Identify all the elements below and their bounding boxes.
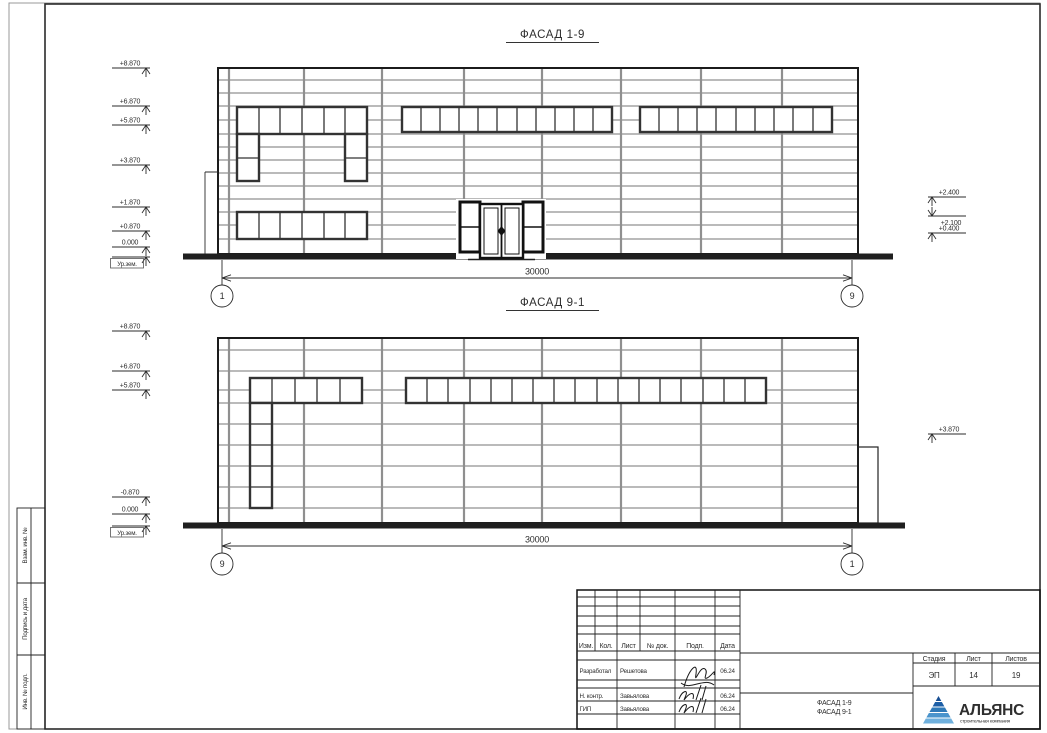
facade2-ground-line [183, 523, 905, 529]
elevation-mark-label: +3.870 [939, 427, 960, 434]
facade1-elevation-marks-right: +2.400 +2.100 +0.400 [928, 190, 966, 243]
tb-role: Разработал [580, 668, 612, 675]
elevation-mark-label: +2.400 [939, 190, 960, 197]
facade1-elevation-marks-left: +8.870 +6.870 +5.870 +3.870 +1.870 +0.87… [111, 61, 151, 269]
elevation-mark-label: +1.870 [120, 200, 141, 207]
tb-date: 06.24 [720, 693, 735, 700]
doc-title-line: ФАСАД 9-1 [817, 709, 852, 716]
tb-name: Завьялова [620, 706, 650, 713]
elevation-mark-label: +8.870 [120, 324, 141, 331]
facade1-window-group-left [237, 107, 367, 181]
facade2-panel-bands [218, 350, 858, 508]
facade1-window-ribbon-center [402, 107, 612, 132]
title-block-staff-rows: Разработал Решетова 06.24 Н. контр. Завь… [580, 667, 736, 713]
tb-col-label: Изм. [579, 643, 593, 650]
title-block: Изм. Кол. Лист № док. Подп. Дата Разрабо… [577, 590, 1040, 729]
company-logo: АЛЬЯНС строительная компания [923, 696, 1024, 725]
tb-date: 06.24 [720, 668, 735, 675]
tb-role: ГИП [580, 706, 592, 713]
facade-1-9-title: ФАСАД 1-9 [520, 29, 585, 41]
facade-9-1-drawing: ФАСАД 9-1 30000 9 1 [111, 297, 967, 575]
elevation-mark-label: +0.400 [939, 226, 960, 233]
grid-axis-bubble: 1 [850, 559, 855, 569]
elevation-mark-label: -0.870 [121, 490, 140, 497]
facade-9-1-title: ФАСАД 9-1 [520, 297, 585, 309]
ground-level-label: Ур.зем. [117, 261, 137, 268]
tb-role: Н. контр. [580, 693, 604, 700]
elevation-mark-label: +8.870 [120, 61, 141, 68]
facade2-window-ribbon-long [406, 378, 766, 403]
facade1-dimension-value: 30000 [525, 267, 549, 277]
stage-label: Стадия [923, 656, 946, 663]
facade1-entrance [456, 199, 546, 260]
logo-company-subtitle: строительная компания [960, 720, 1011, 725]
signature [679, 685, 706, 700]
side-stamp-label: Подпись и дата [22, 597, 29, 639]
title-block-header: Изм. Кол. Лист № док. Подп. Дата [579, 643, 735, 650]
logo-company-name: АЛЬЯНС [959, 702, 1024, 719]
grid-axis-bubble: 9 [220, 559, 225, 569]
grid-axis-bubble: 9 [850, 291, 855, 301]
sheets-label: Листов [1005, 656, 1027, 663]
facade2-grid-axes: 9 1 [211, 553, 863, 575]
sheet-svg: Взам. инв. № Подпись и дата Инв. № подл.… [0, 0, 1047, 733]
title-block-stage: Стадия Лист Листов ЭП 14 19 [923, 656, 1028, 680]
side-stamp-label: Инв. № подл. [22, 673, 29, 710]
tb-name: Завьялова [620, 693, 650, 700]
tb-col-label: Кол. [599, 643, 612, 650]
facade-1-9-drawing: ФАСАД 1-9 [111, 29, 967, 307]
doc-title-line: ФАСАД 1-9 [817, 700, 852, 707]
signature [681, 667, 715, 687]
facade2-elevation-marks-right: +3.870 [928, 427, 966, 444]
facade2-panel-joints [229, 339, 782, 522]
facade1-dimension: 30000 [222, 260, 852, 285]
title-block-doc-title: ФАСАД 1-9 ФАСАД 9-1 [817, 700, 852, 716]
tb-col-label: Подп. [686, 643, 704, 650]
side-stamp-label: Взам. инв. № [22, 527, 29, 563]
sheet-label: Лист [966, 656, 981, 663]
tb-name: Решетова [620, 668, 648, 675]
elevation-mark-label: +5.870 [120, 383, 141, 390]
facade2-dimension-value: 30000 [525, 535, 549, 545]
signature [679, 698, 706, 713]
elevation-mark-label: +6.870 [120, 99, 141, 106]
facade2-elevation-marks-left: +8.870 +6.870 +5.870 -0.870 0.000 Ур.зем… [111, 324, 151, 538]
elevation-mark-label: +3.870 [120, 158, 141, 165]
facade2-outline [218, 338, 858, 523]
elevation-mark-label: 0.000 [122, 240, 139, 247]
facade1-window-ribbon-right [640, 107, 832, 132]
elevation-mark-label: +6.870 [120, 364, 141, 371]
facade2-window-group-left [250, 378, 362, 508]
side-stamp: Взам. инв. № Подпись и дата Инв. № подл. [17, 508, 45, 729]
elevation-mark-label: +5.870 [120, 118, 141, 125]
logo-pyramid-icon [923, 696, 954, 724]
facade2-right-annex [858, 447, 878, 523]
facade2-dimension: 30000 [222, 529, 852, 553]
tb-col-label: Дата [720, 643, 735, 650]
facade1-window-ribbon-lower [237, 212, 367, 239]
elevation-mark-label: 0.000 [122, 507, 139, 514]
facade1-left-step [205, 172, 218, 254]
grid-axis-bubble: 1 [220, 291, 225, 301]
sheet-number: 14 [969, 671, 978, 680]
sheets-total: 19 [1012, 671, 1021, 680]
drawing-sheet: Взам. инв. № Подпись и дата Инв. № подл.… [0, 0, 1047, 733]
tb-col-label: № док. [647, 643, 668, 650]
ground-level-label: Ур.зем. [117, 530, 137, 537]
stage-value: ЭП [928, 671, 940, 680]
elevation-mark-label: +0.870 [120, 224, 141, 231]
tb-date: 06.24 [720, 706, 735, 713]
tb-col-label: Лист [621, 643, 636, 650]
